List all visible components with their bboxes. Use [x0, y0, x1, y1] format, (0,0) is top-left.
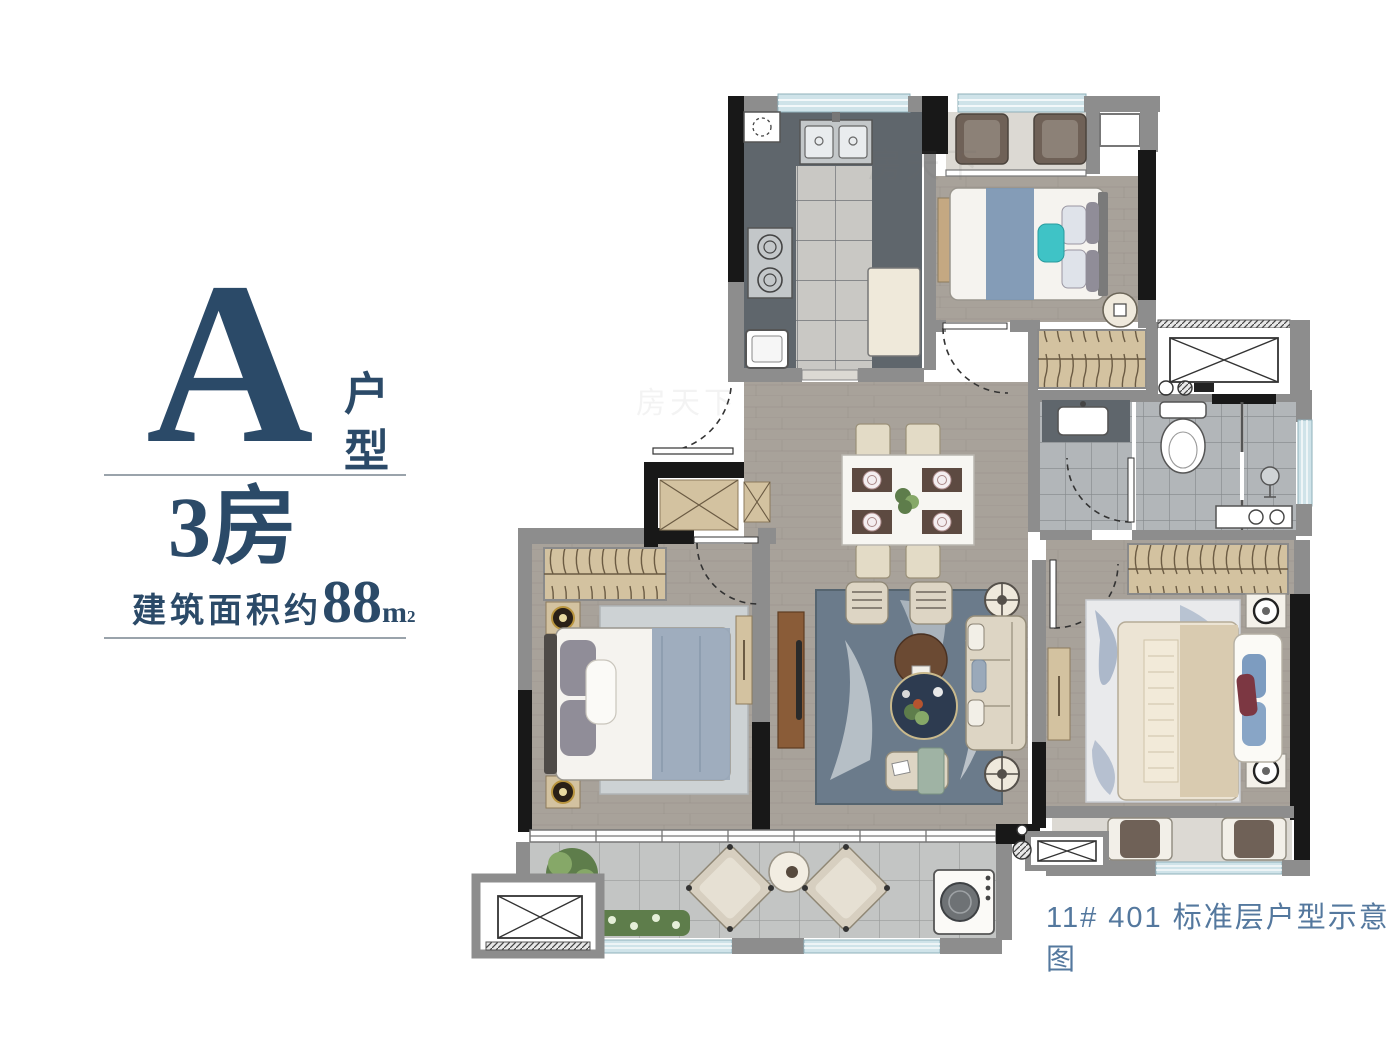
- living-room: [778, 582, 1026, 804]
- master-door-leaf: [694, 537, 758, 543]
- ac-platform-southeast: [1013, 825, 1106, 868]
- flue-box: [744, 112, 780, 142]
- accent-stool: [846, 582, 888, 624]
- nightstand-lamp: [546, 776, 580, 808]
- bath-dresser: [1216, 506, 1292, 528]
- stove: [748, 228, 792, 298]
- bedroom2-door-leaf: [943, 323, 1007, 329]
- dining-chair: [856, 544, 890, 578]
- ac-platform-southwest: [476, 878, 600, 954]
- ottoman: [886, 748, 948, 794]
- tv: [796, 640, 802, 720]
- shrub-strip: [596, 910, 690, 936]
- kitchen-sink: [800, 112, 872, 164]
- entry-door-leaf: [653, 448, 733, 454]
- bed: [950, 188, 1108, 300]
- washbasin: [1058, 407, 1108, 435]
- bed: [544, 628, 730, 780]
- refrigerator: [868, 268, 920, 356]
- terrace-chair: [1222, 818, 1286, 860]
- sofa: [966, 616, 1026, 750]
- pipe-hatch: [1013, 841, 1031, 859]
- chair-cushion: [1042, 120, 1078, 158]
- toilet: [1160, 402, 1206, 473]
- entry-shafts: [660, 480, 770, 530]
- dining-chair: [906, 424, 940, 458]
- side-table-round: [985, 757, 1019, 791]
- washing-machine: [934, 870, 994, 934]
- ac-platform-upper: [1158, 328, 1290, 395]
- nightstand-lamp: [1246, 594, 1286, 628]
- dining-chair: [906, 544, 940, 578]
- toilet-door-leaf: [1128, 458, 1134, 522]
- dining-chair: [856, 424, 890, 458]
- plan-caption: 11# 401 标准层户型示意图: [1046, 894, 1400, 978]
- terrace-chair: [1108, 818, 1172, 860]
- accent-stool: [910, 582, 952, 624]
- watermark: 房天下: [636, 378, 738, 422]
- nightstand-lamp: [1103, 293, 1137, 327]
- watermark: 房天下: [868, 138, 982, 187]
- bedroom3-door-leaf: [1050, 560, 1056, 628]
- coffee-table-navy: [891, 673, 957, 739]
- appliance-door: [752, 336, 782, 362]
- kitchen-tile-path: [796, 166, 872, 370]
- side-table-round: [985, 583, 1019, 617]
- faucet: [1080, 401, 1086, 407]
- floorplan-page: A 户型 3房 建筑面积约88m2: [0, 0, 1400, 1051]
